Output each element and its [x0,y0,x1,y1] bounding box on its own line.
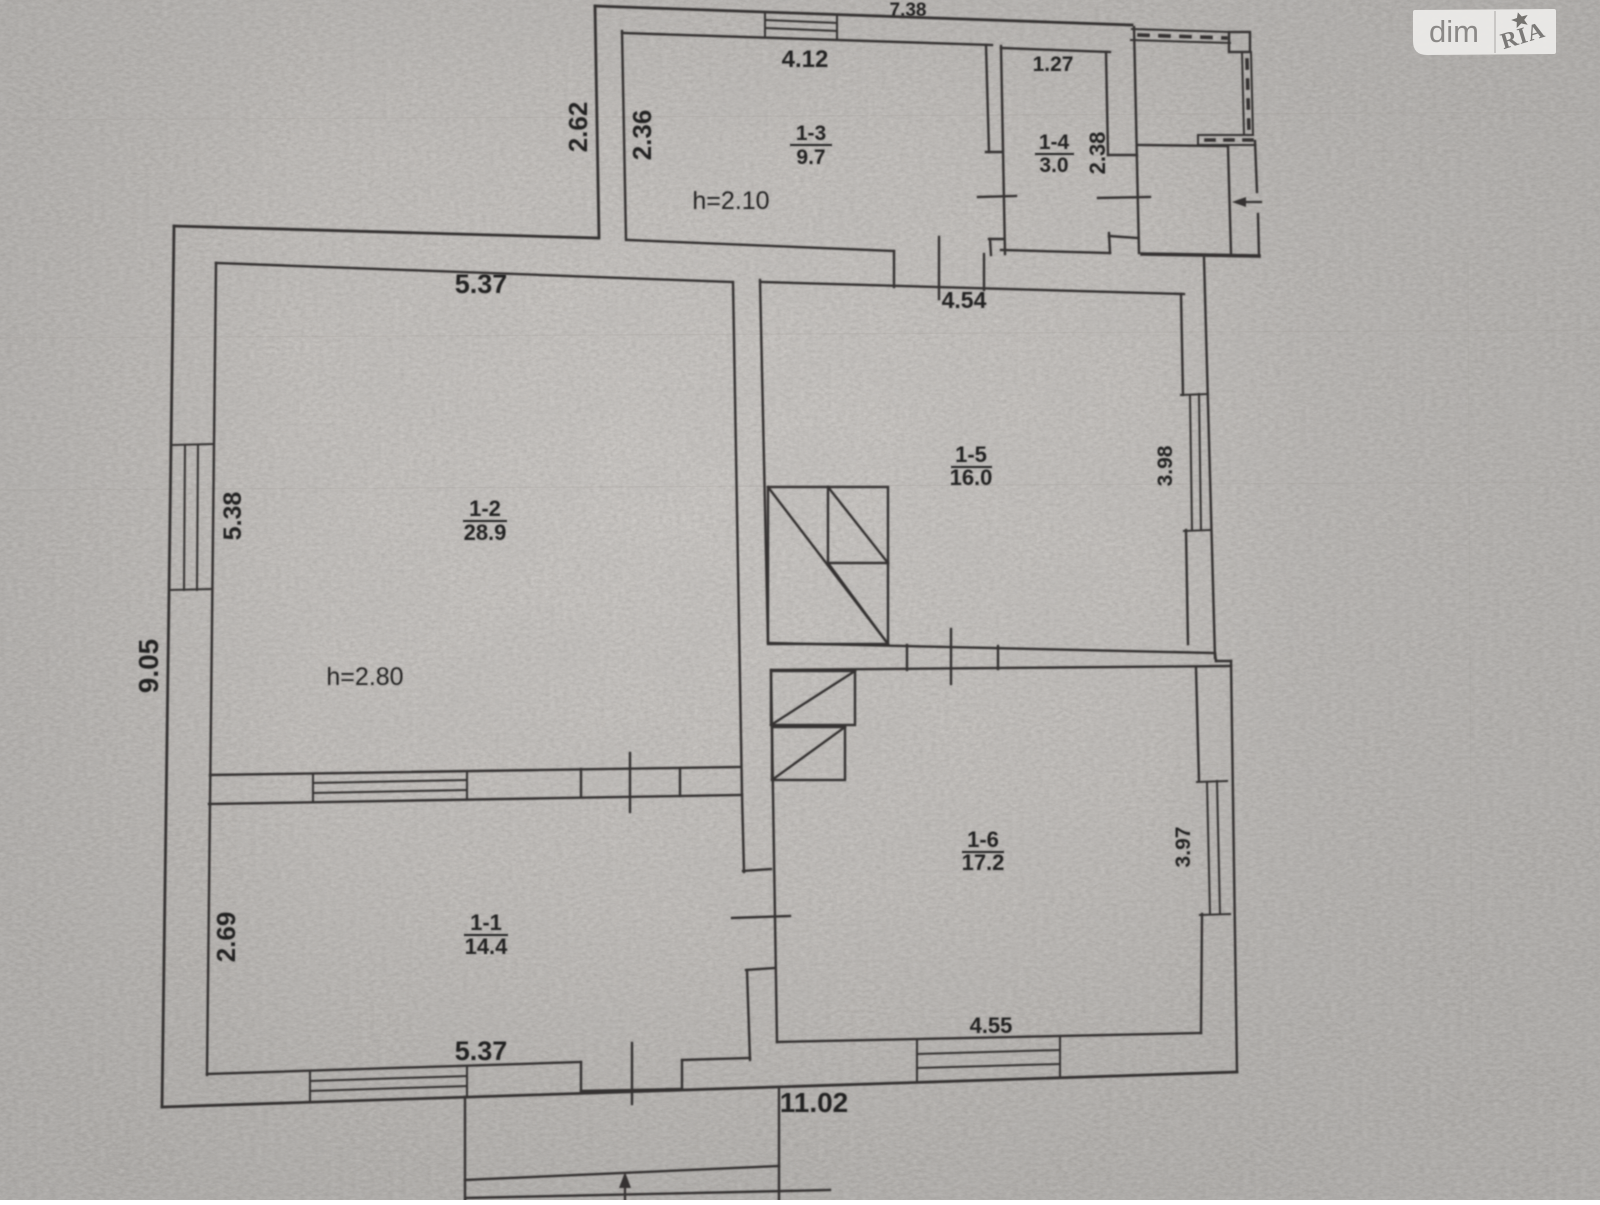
svg-text:1-4: 1-4 [1039,131,1070,154]
svg-text:11.02: 11.02 [780,1087,849,1118]
svg-text:7.38: 7.38 [890,0,927,21]
svg-text:5.38: 5.38 [219,492,247,541]
svg-text:1.27: 1.27 [1033,53,1074,76]
svg-text:h=2.80: h=2.80 [326,663,403,691]
svg-text:28.9: 28.9 [464,520,507,545]
svg-text:17.2: 17.2 [962,850,1005,875]
svg-text:4.12: 4.12 [782,46,829,73]
svg-text:14.4: 14.4 [465,934,509,959]
svg-text:1-1: 1-1 [470,910,502,935]
svg-text:3.98: 3.98 [1154,445,1177,486]
svg-text:1-6: 1-6 [967,827,999,852]
svg-text:16.0: 16.0 [950,465,993,490]
svg-text:2.36: 2.36 [627,110,657,161]
svg-text:h=2.10: h=2.10 [692,187,769,215]
svg-text:5.37: 5.37 [455,1036,508,1066]
svg-text:1-5: 1-5 [955,442,987,467]
svg-text:4.55: 4.55 [970,1013,1013,1038]
svg-text:1-2: 1-2 [469,496,501,521]
svg-text:3.97: 3.97 [1172,827,1195,868]
svg-text:1-3: 1-3 [796,122,826,145]
svg-text:4.54: 4.54 [942,287,987,313]
svg-text:dim: dim [1429,14,1479,49]
svg-text:9.7: 9.7 [796,146,825,169]
svg-text:3.0: 3.0 [1039,154,1068,177]
svg-text:5.37: 5.37 [455,269,508,299]
svg-text:2.69: 2.69 [211,912,241,963]
svg-text:9.05: 9.05 [133,639,164,694]
svg-text:2.62: 2.62 [563,102,593,153]
svg-text:2.38: 2.38 [1085,132,1110,175]
